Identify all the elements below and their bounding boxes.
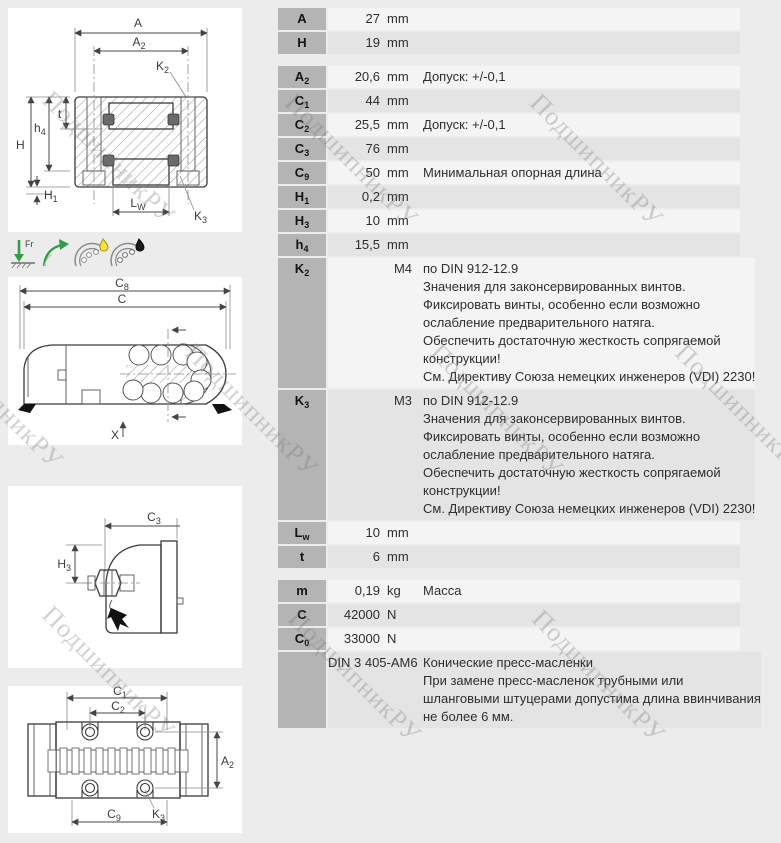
- param-unit: N: [380, 630, 422, 648]
- radial-load-icon: Fr: [11, 239, 35, 268]
- param-description: [422, 630, 740, 648]
- param-label: C2: [278, 114, 326, 136]
- dim-X: X: [111, 428, 119, 442]
- description-line: См. Директиву Союза немецких инженеров (…: [423, 368, 755, 386]
- dim-A: A: [134, 16, 142, 30]
- dim-H3: H3: [57, 557, 71, 573]
- param-value: 20,6: [328, 68, 380, 86]
- param-content: 19 mm: [328, 32, 740, 54]
- oil-lubrication-icon: [111, 239, 144, 266]
- param-label: A2: [278, 66, 326, 88]
- param-value: 27: [328, 10, 380, 28]
- drawing-top-view: C1 C2: [8, 686, 242, 833]
- roller-elements: [48, 748, 188, 774]
- param-unit: mm: [380, 524, 422, 542]
- table-row: m 0,19 kg Масса: [278, 580, 740, 602]
- param-description: Конические пресс-масленкиПри замене прес…: [422, 654, 761, 726]
- table-row: A2 20,6 mm Допуск: +/-0,1: [278, 66, 740, 88]
- param-description: [422, 548, 740, 566]
- param-label: C1: [278, 90, 326, 112]
- description-line: Обеспечить достаточную жесткость сопряга…: [423, 332, 755, 350]
- table-row: t 6 mm: [278, 546, 740, 568]
- drawing-end-view: C3 H3: [8, 486, 242, 668]
- description-line: по DIN 912-12.9: [423, 392, 755, 410]
- param-unit: mm: [380, 116, 422, 134]
- table-row: C1 44 mm: [278, 90, 740, 112]
- description-line: Минимальная опорная длина: [423, 164, 740, 182]
- param-content: 0,19 kg Масса: [328, 580, 740, 602]
- param-label: C: [278, 604, 326, 626]
- description-line: См. Директиву Союза немецких инженеров (…: [423, 500, 755, 518]
- param-label: C0: [278, 628, 326, 650]
- drawing-front-section: A A2 K2: [8, 8, 242, 232]
- table-row: C3 76 mm: [278, 138, 740, 160]
- param-label: K2: [278, 258, 326, 388]
- description-line: ослабление предварительного натяга.: [423, 314, 755, 332]
- param-value: 0,19: [328, 582, 380, 600]
- param-description: по DIN 912-12.9Значения для законсервиро…: [422, 392, 755, 518]
- description-line: Значения для законсервированных винтов.: [423, 410, 755, 428]
- param-value: 76: [328, 140, 380, 158]
- dim-C3: C3: [147, 510, 161, 526]
- param-unit: mm: [380, 10, 422, 28]
- dim-C8: C8: [115, 277, 129, 292]
- dim-C9: C9: [107, 807, 121, 823]
- param-description: [422, 10, 740, 28]
- description-line: ослабление предварительного натяга.: [423, 446, 755, 464]
- param-content: M4 по DIN 912-12.9Значения для законсерв…: [328, 258, 755, 388]
- description-line: конструкции!: [423, 350, 755, 368]
- param-value: DIN 3 405-AM6: [328, 654, 422, 726]
- param-content: 0,2 mm: [328, 186, 740, 208]
- param-content: 10 mm: [328, 210, 740, 232]
- table-row: H 19 mm: [278, 32, 740, 54]
- dim-K3-top: K3: [152, 807, 165, 823]
- param-content: DIN 3 405-AM6 Конические пресс-масленкиП…: [328, 652, 761, 728]
- param-content: 25,5 mm Допуск: +/-0,1: [328, 114, 740, 136]
- param-description: Масса: [422, 582, 740, 600]
- table-row: A 27 mm: [278, 8, 740, 30]
- param-unit: N: [380, 606, 422, 624]
- param-content: 6 mm: [328, 546, 740, 568]
- grease-blob: [107, 608, 129, 631]
- svg-text:Fr: Fr: [25, 239, 34, 249]
- param-value: 42000: [328, 606, 380, 624]
- grease-lubrication-icon: [75, 239, 108, 266]
- description-line: по DIN 912-12.9: [423, 260, 755, 278]
- param-content: 10 mm: [328, 522, 740, 544]
- dim-h4: h4: [34, 121, 46, 137]
- param-description: Минимальная опорная длина: [422, 164, 740, 182]
- param-description: [422, 188, 740, 206]
- table-row: C2 25,5 mm Допуск: +/-0,1: [278, 114, 740, 136]
- description-line: конструкции!: [423, 482, 755, 500]
- description-line: шланговыми штуцерами допустима длина вви…: [423, 690, 761, 708]
- param-value: M4: [328, 260, 422, 386]
- param-description: [422, 524, 740, 542]
- dim-H: H: [16, 138, 25, 152]
- param-value: 0,2: [328, 188, 380, 206]
- param-label: H1: [278, 186, 326, 208]
- param-description: [422, 140, 740, 158]
- dim-Lw: LW: [130, 196, 146, 212]
- param-label: H: [278, 32, 326, 54]
- param-description: Допуск: +/-0,1: [422, 116, 740, 134]
- table-row: K3 M3 по DIN 912-12.9Значения для законс…: [278, 390, 740, 520]
- dim-C2: C2: [111, 699, 125, 715]
- param-unit: mm: [380, 34, 422, 52]
- param-unit: mm: [380, 164, 422, 182]
- param-label: [278, 652, 326, 728]
- param-unit: mm: [380, 236, 422, 254]
- param-description: [422, 92, 740, 110]
- self-alignment-icon: [44, 239, 69, 266]
- dim-K3: K3: [194, 209, 207, 225]
- param-value: 19: [328, 34, 380, 52]
- table-row: C0 33000 N: [278, 628, 740, 650]
- table-row: K2 M4 по DIN 912-12.9Значения для законс…: [278, 258, 740, 388]
- param-content: M3 по DIN 912-12.9Значения для законсерв…: [328, 390, 755, 520]
- param-label: t: [278, 546, 326, 568]
- param-unit: mm: [380, 548, 422, 566]
- table-row: C9 50 mm Минимальная опорная длина: [278, 162, 740, 184]
- table-row: H3 10 mm: [278, 210, 740, 232]
- param-label: h4: [278, 234, 326, 256]
- param-label: Lw: [278, 522, 326, 544]
- param-content: 42000 N: [328, 604, 740, 626]
- param-unit: mm: [380, 68, 422, 86]
- description-line: Масса: [423, 582, 740, 600]
- param-value: 15,5: [328, 236, 380, 254]
- param-content: 50 mm Минимальная опорная длина: [328, 162, 740, 184]
- table-row: H1 0,2 mm: [278, 186, 740, 208]
- drawing-side-section: C8 C: [8, 277, 242, 445]
- bearing-datasheet-page: A A2 K2: [0, 0, 781, 843]
- front-section-svg: A A2 K2: [8, 8, 242, 232]
- feature-icons: Fr: [8, 236, 158, 274]
- param-value: 10: [328, 212, 380, 230]
- param-description: [422, 212, 740, 230]
- param-value: 10: [328, 524, 380, 542]
- param-content: 15,5 mm: [328, 234, 740, 256]
- param-content: 44 mm: [328, 90, 740, 112]
- param-content: 33000 N: [328, 628, 740, 650]
- param-value: 44: [328, 92, 380, 110]
- table-row: DIN 3 405-AM6 Конические пресс-масленкиП…: [278, 652, 740, 728]
- param-label: m: [278, 580, 326, 602]
- table-row: Lw 10 mm: [278, 522, 740, 544]
- param-label: C9: [278, 162, 326, 184]
- param-content: 76 mm: [328, 138, 740, 160]
- dim-A2-top: A2: [221, 754, 234, 770]
- param-description: по DIN 912-12.9Значения для законсервиро…: [422, 260, 755, 386]
- param-unit: mm: [380, 92, 422, 110]
- table-row: C 42000 N: [278, 604, 740, 626]
- param-unit: mm: [380, 212, 422, 230]
- param-value: 25,5: [328, 116, 380, 134]
- table-section: A 27 mm H 19 mm: [278, 8, 740, 54]
- param-description: Допуск: +/-0,1: [422, 68, 740, 86]
- dim-C: C: [118, 292, 127, 306]
- description-line: Фиксировать винты, особенно если возможн…: [423, 296, 755, 314]
- mounting-holes: [82, 722, 153, 798]
- param-description: [422, 34, 740, 52]
- param-unit: mm: [380, 188, 422, 206]
- param-description: [422, 236, 740, 254]
- spec-table: A 27 mm H 19 mm A2 20,6 mm Допуск: +/-0,…: [278, 8, 740, 740]
- param-unit: mm: [380, 140, 422, 158]
- dim-H1: H1: [44, 188, 58, 204]
- param-label: A: [278, 8, 326, 30]
- param-value: 33000: [328, 630, 380, 648]
- param-unit: kg: [380, 582, 422, 600]
- description-line: Допуск: +/-0,1: [423, 116, 740, 134]
- param-description: [422, 606, 740, 624]
- param-label: K3: [278, 390, 326, 520]
- param-value: M3: [328, 392, 422, 518]
- param-value: 6: [328, 548, 380, 566]
- description-line: не более 6 мм.: [423, 708, 761, 726]
- description-line: Конические пресс-масленки: [423, 654, 761, 672]
- description-line: Обеспечить достаточную жесткость сопряга…: [423, 464, 755, 482]
- param-value: 50: [328, 164, 380, 182]
- table-section: m 0,19 kg Масса C 42000 N C0 33000 N: [278, 580, 740, 728]
- dim-C1: C1: [113, 686, 127, 700]
- description-line: При замене пресс-масленок трубными или: [423, 672, 761, 690]
- dim-K2: K2: [156, 59, 169, 75]
- table-section: A2 20,6 mm Допуск: +/-0,1 C1 44 mm C2 25…: [278, 66, 740, 568]
- param-label: H3: [278, 210, 326, 232]
- description-line: Значения для законсервированных винтов.: [423, 278, 755, 296]
- param-content: 20,6 mm Допуск: +/-0,1: [328, 66, 740, 88]
- table-row: h4 15,5 mm: [278, 234, 740, 256]
- description-line: Допуск: +/-0,1: [423, 68, 740, 86]
- param-label: C3: [278, 138, 326, 160]
- description-line: Фиксировать винты, особенно если возможн…: [423, 428, 755, 446]
- param-content: 27 mm: [328, 8, 740, 30]
- dim-t: t: [58, 107, 62, 121]
- dim-A2: A2: [132, 35, 145, 51]
